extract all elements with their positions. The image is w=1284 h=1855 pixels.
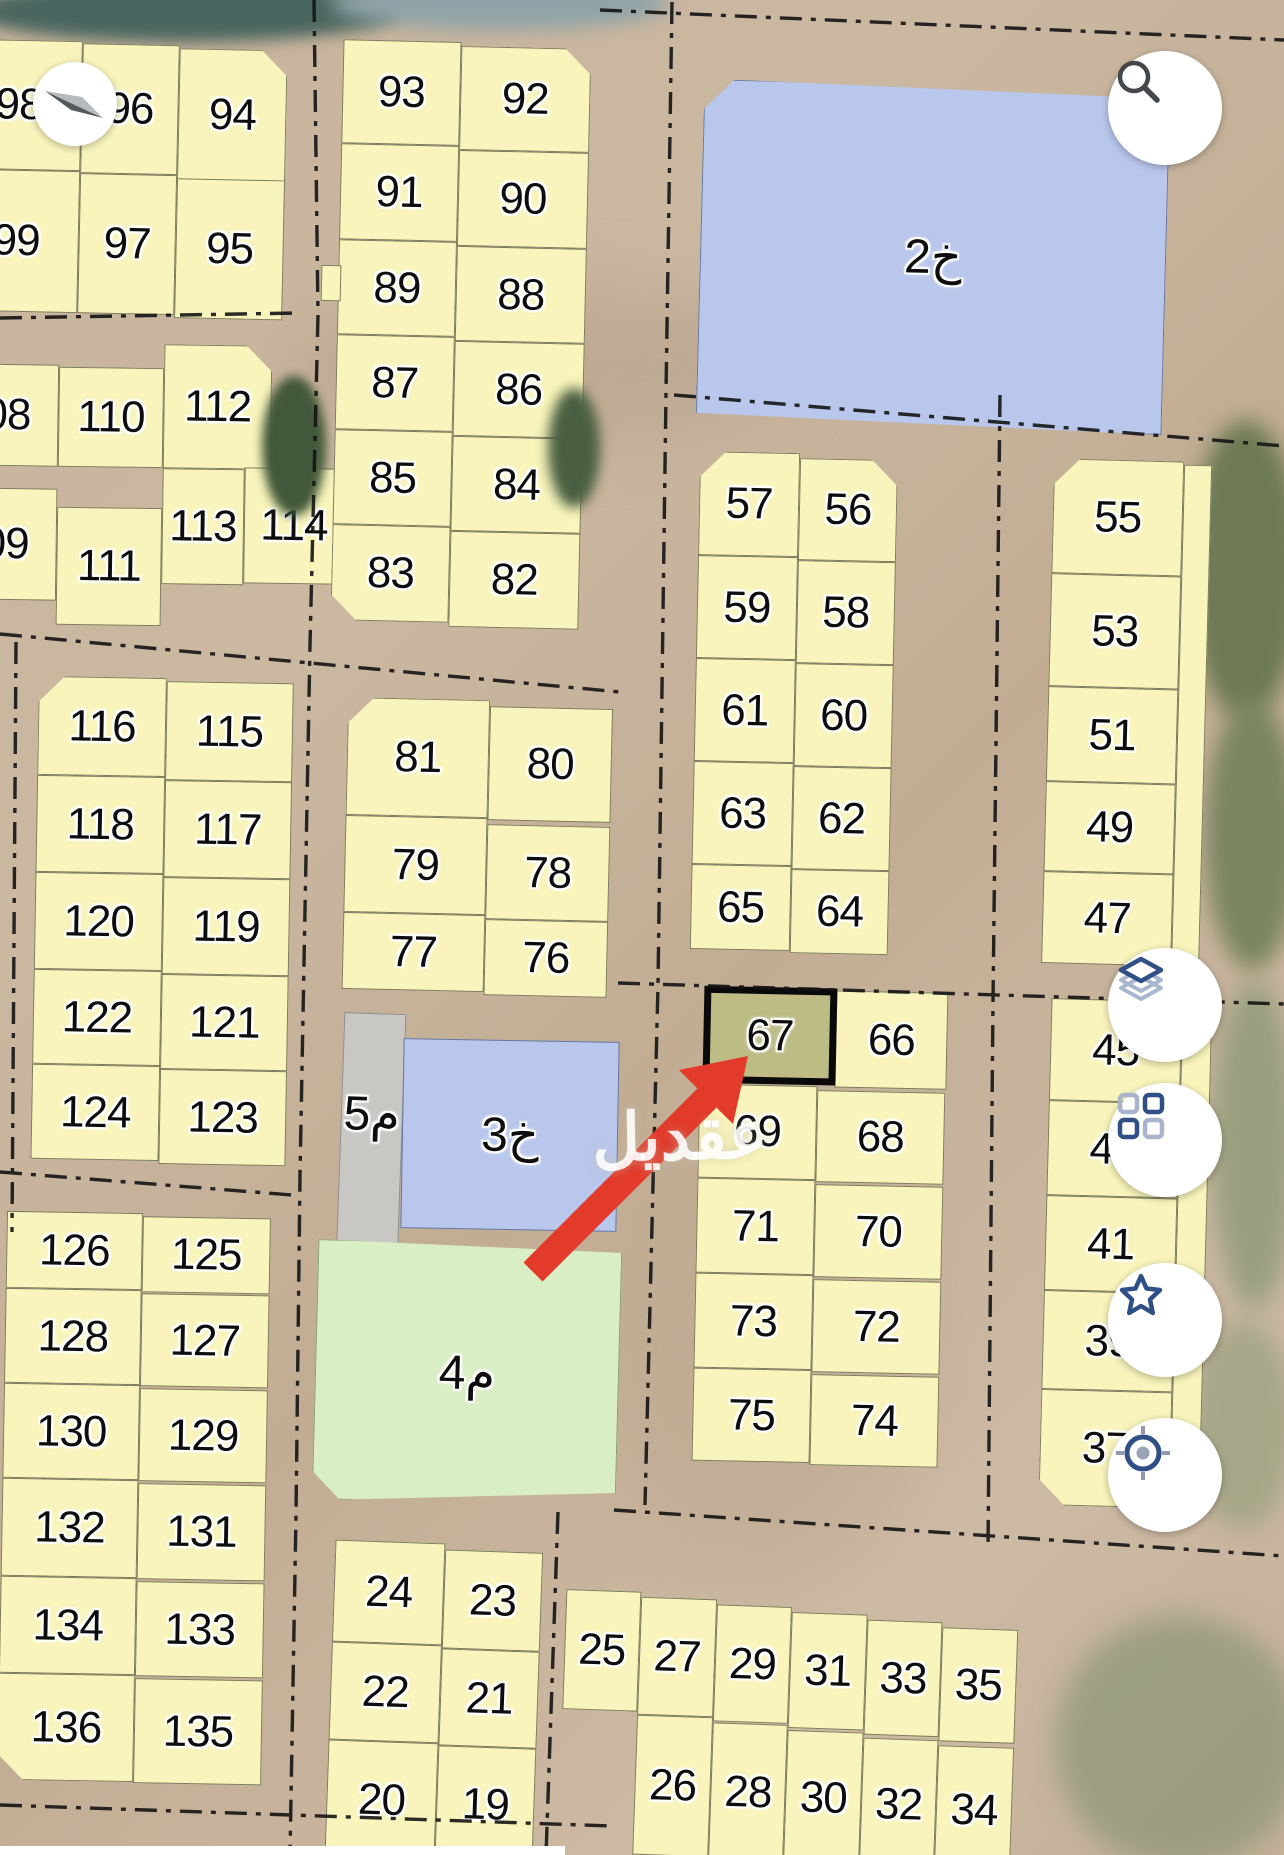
star-icon (1108, 1263, 1174, 1329)
search-button[interactable] (1108, 51, 1222, 165)
grid-icon (1108, 1083, 1174, 1149)
bottom-bar (0, 1846, 565, 1855)
favorites-button[interactable] (1108, 1263, 1222, 1377)
map-canvas[interactable]: 98 96 94 99 97 95 08 110 112 09 111 113 … (0, 0, 1284, 1855)
locate-button[interactable] (1108, 1418, 1222, 1532)
compass-icon (33, 62, 117, 146)
parcel-boundary-lines (0, 0, 1284, 1855)
pointer-arrow (533, 1056, 748, 1272)
search-icon (1108, 51, 1168, 111)
compass-button[interactable] (33, 62, 117, 146)
grid-view-button[interactable] (1108, 1083, 1222, 1197)
layers-icon (1108, 948, 1174, 1014)
boundary-lines-overlay (0, 0, 1284, 1855)
locate-icon (1108, 1418, 1178, 1488)
layers-button[interactable] (1108, 948, 1222, 1062)
